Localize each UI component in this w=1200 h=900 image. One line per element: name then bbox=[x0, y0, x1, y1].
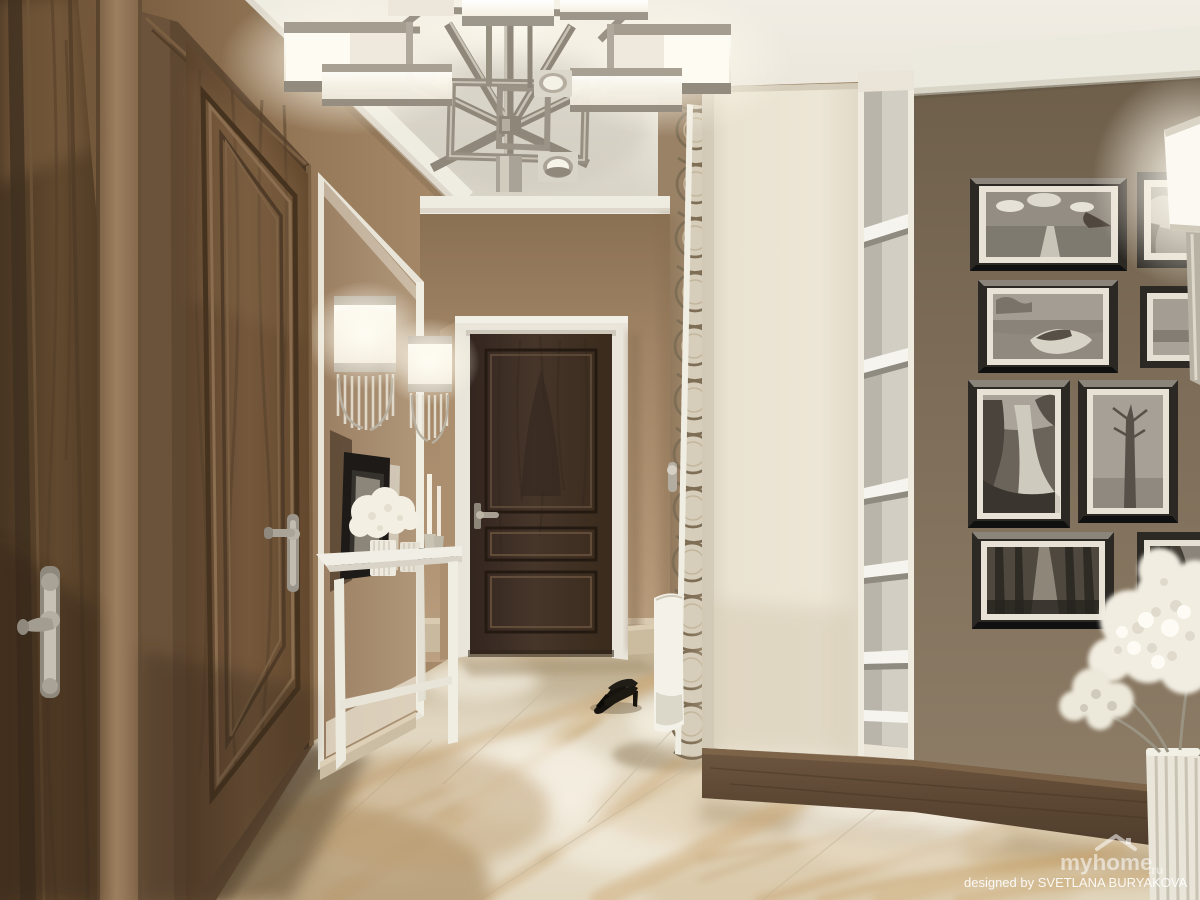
svg-text:designed by SVETLANA BURYAKOVA: designed by SVETLANA BURYAKOVA bbox=[964, 875, 1188, 890]
svg-text:myhome: myhome bbox=[1060, 850, 1153, 875]
